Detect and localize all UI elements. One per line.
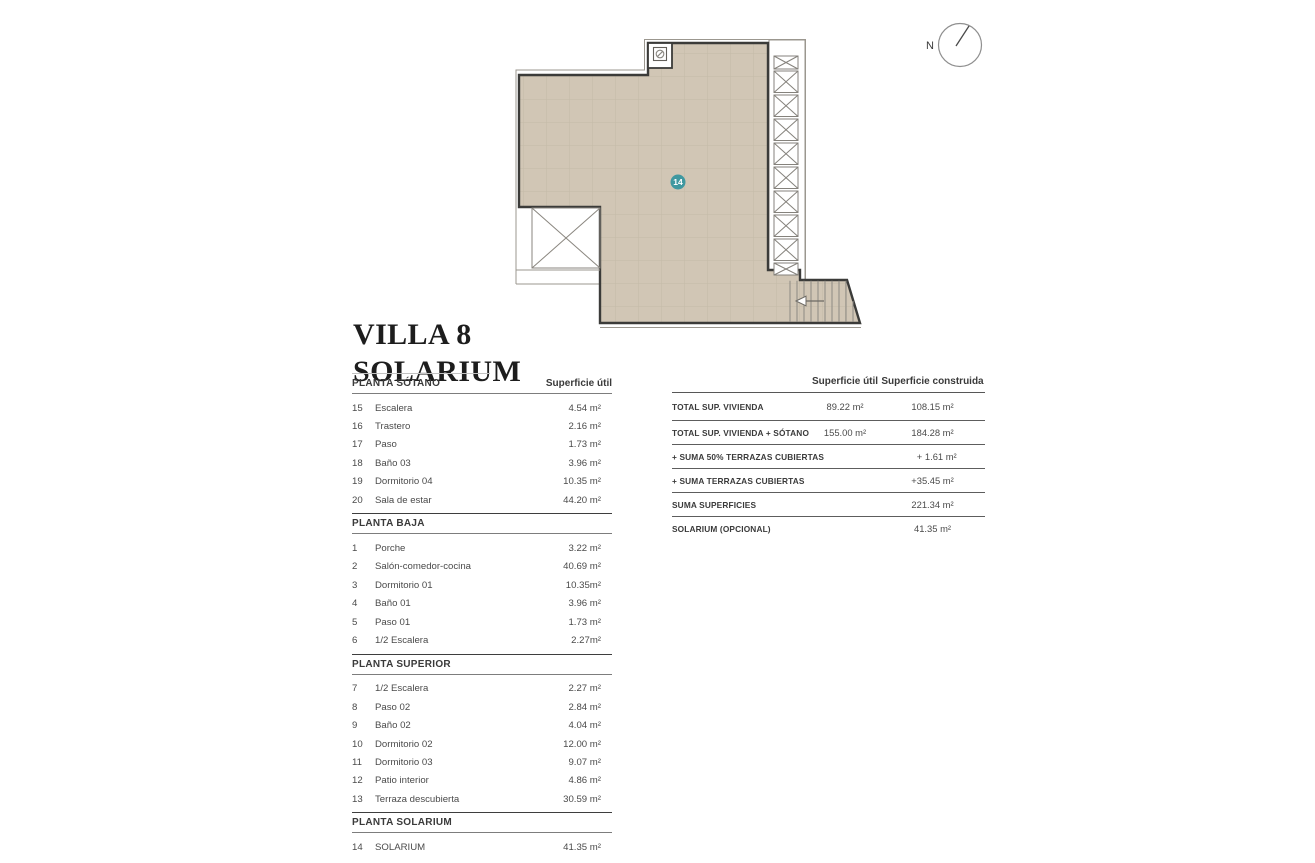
room-area: 2.16 m²	[568, 421, 612, 432]
room-number: 12	[352, 775, 375, 786]
room-name: 1/2 Escalera	[375, 635, 571, 646]
room-area: 40.69 m²	[563, 561, 612, 572]
summary-value-construida: + 1.61 m²	[888, 451, 985, 462]
room-name: Dormitorio 03	[375, 757, 568, 768]
room-number: 15	[352, 403, 375, 414]
section-title: PLANTA SUPERIOR	[352, 659, 451, 670]
drain-icon	[654, 48, 667, 61]
room-area: 4.86 m²	[568, 775, 612, 786]
room-name: Sala de estar	[375, 495, 563, 506]
room-name: Escalera	[375, 403, 568, 414]
room-area: 10.35 m²	[563, 476, 612, 487]
room-name: Dormitorio 01	[375, 580, 566, 591]
section-title: PLANTA BAJA	[352, 518, 425, 529]
summary-value-construida: 41.35 m²	[880, 523, 985, 534]
table-row: SOLARIUM (OPCIONAL)41.35 m²	[672, 517, 985, 540]
room-number: 5	[352, 617, 375, 628]
column-header-superficie-util: Superficie útil	[810, 376, 880, 387]
table-row: 13Terraza descubierta30.59 m²	[352, 790, 612, 808]
table-row: 17Paso1.73 m²	[352, 436, 612, 454]
room-number: 8	[352, 702, 375, 713]
summary-label: + SUMA TERRAZAS CUBIERTAS	[672, 476, 810, 486]
table-row: 3Dormitorio 0110.35m²	[352, 576, 612, 594]
room-number: 4	[352, 598, 375, 609]
table-row: 15Escalera4.54 m²	[352, 399, 612, 417]
room-name: Paso	[375, 439, 568, 450]
room-number: 11	[352, 757, 375, 768]
room-number: 13	[352, 794, 375, 805]
room-area: 10.35m²	[566, 580, 612, 591]
room-area: 1.73 m²	[568, 617, 612, 628]
room-name: SOLARIUM	[375, 842, 563, 853]
room-name: Paso 01	[375, 617, 568, 628]
room-name: Salón-comedor-cocina	[375, 561, 563, 572]
room-area: 3.96 m²	[568, 458, 612, 469]
section-header: PLANTA BAJA	[352, 514, 612, 533]
room-number: 18	[352, 458, 375, 469]
table-row: 16Trastero2.16 m²	[352, 417, 612, 435]
section-title: PLANTA SOLARIUM	[352, 817, 452, 828]
summary-value-construida: +35.45 m²	[880, 475, 985, 486]
summary-label: + SUMA 50% TERRAZAS CUBIERTAS	[672, 452, 824, 462]
room-area: 2.84 m²	[568, 702, 612, 713]
room-number: 14	[352, 842, 375, 853]
svg-text:14: 14	[673, 177, 683, 187]
left-table: PLANTA SÓTANOSuperficie útil15Escalera4.…	[352, 373, 612, 857]
room-number: 10	[352, 739, 375, 750]
table-row: TOTAL SUP. VIVIENDA89.22 m²108.15 m²	[672, 393, 985, 421]
room-number: 3	[352, 580, 375, 591]
room-number: 9	[352, 720, 375, 731]
summary-value-construida: 221.34 m²	[880, 499, 985, 510]
table-row: 61/2 Escalera2.27m²	[352, 631, 612, 649]
section-title: PLANTA SÓTANO	[352, 378, 440, 389]
table-row: 2Salón-comedor-cocina40.69 m²	[352, 558, 612, 576]
summary-label: TOTAL SUP. VIVIENDA	[672, 402, 810, 412]
room-name: Baño 02	[375, 720, 568, 731]
room-name: Baño 01	[375, 598, 568, 609]
table-row: 14SOLARIUM41.35 m²	[352, 838, 612, 856]
table-row: 4Baño 013.96 m²	[352, 595, 612, 613]
right-table-rows: TOTAL SUP. VIVIENDA89.22 m²108.15 m²TOTA…	[672, 393, 985, 540]
section-rows: 1Porche3.22 m²2Salón-comedor-cocina40.69…	[352, 534, 612, 649]
table-row: 10Dormitorio 0212.00 m²	[352, 735, 612, 753]
table-row: 5Paso 011.73 m²	[352, 613, 612, 631]
room-number: 19	[352, 476, 375, 487]
column-header-superficie-construida: Superficie construida	[880, 376, 985, 387]
room-name: Baño 03	[375, 458, 568, 469]
solarium-floor	[519, 43, 860, 323]
room-area: 3.96 m²	[568, 598, 612, 609]
table-row: TOTAL SUP. VIVIENDA + SÓTANO155.00 m²184…	[672, 421, 985, 445]
room-name: Paso 02	[375, 702, 568, 713]
column-header-superficie-util: Superficie útil	[546, 378, 612, 389]
room-number: 7	[352, 683, 375, 694]
room-name: Dormitorio 04	[375, 476, 563, 487]
room-name: Porche	[375, 543, 568, 554]
compass-icon: N	[915, 12, 985, 70]
room-name: Trastero	[375, 421, 568, 432]
room-marker: 14	[671, 175, 686, 190]
table-row: 19Dormitorio 0410.35 m²	[352, 473, 612, 491]
table-row: 9Baño 024.04 m²	[352, 716, 612, 734]
room-area: 2.27 m²	[568, 683, 612, 694]
room-area: 44.20 m²	[563, 495, 612, 506]
table-row: + SUMA 50% TERRAZAS CUBIERTAS+ 1.61 m²	[672, 445, 985, 469]
table-row: 8Paso 022.84 m²	[352, 698, 612, 716]
floor-plan-drawing: 14	[500, 30, 880, 330]
table-row: 1Porche3.22 m²	[352, 539, 612, 557]
summary-value-construida: 184.28 m²	[880, 427, 985, 438]
room-area: 2.27m²	[571, 635, 612, 646]
summary-value-util: 89.22 m²	[810, 401, 880, 412]
summary-value-construida: 108.15 m²	[880, 401, 985, 412]
section-rows: 14SOLARIUM41.35 m²	[352, 833, 612, 856]
summary-label: SOLARIUM (OPCIONAL)	[672, 524, 810, 534]
table-row: 11Dormitorio 039.07 m²	[352, 753, 612, 771]
table-row: + SUMA TERRAZAS CUBIERTAS+35.45 m²	[672, 469, 985, 493]
room-area: 4.04 m²	[568, 720, 612, 731]
section-header: PLANTA SOLARIUM	[352, 813, 612, 832]
room-name: Patio interior	[375, 775, 568, 786]
table-row: 71/2 Escalera2.27 m²	[352, 680, 612, 698]
room-area: 30.59 m²	[563, 794, 612, 805]
room-number: 2	[352, 561, 375, 572]
room-area: 12.00 m²	[563, 739, 612, 750]
room-name: Terraza descubierta	[375, 794, 563, 805]
summary-label: TOTAL SUP. VIVIENDA + SÓTANO	[672, 428, 810, 438]
room-area: 4.54 m²	[568, 403, 612, 414]
section-rows: 15Escalera4.54 m²16Trastero2.16 m²17Paso…	[352, 394, 612, 509]
room-area: 41.35 m²	[563, 842, 612, 853]
table-row: SUMA SUPERFICIES221.34 m²	[672, 493, 985, 517]
table-row: 20Sala de estar44.20 m²	[352, 491, 612, 509]
pergola-beams-icon	[774, 56, 798, 275]
floor-plan-sheet: 14 N VILLA 8 SOLARIUM PLANTA SÓTANOSuper…	[0, 0, 1315, 863]
room-area: 1.73 m²	[568, 439, 612, 450]
compass-north-label: N	[926, 40, 934, 52]
table-row: 18Baño 033.96 m²	[352, 454, 612, 472]
section-header: PLANTA SUPERIOR	[352, 655, 612, 674]
summary-label: SUMA SUPERFICIES	[672, 500, 810, 510]
room-area: 9.07 m²	[568, 757, 612, 768]
room-number: 16	[352, 421, 375, 432]
summary-value-util: 155.00 m²	[810, 427, 880, 438]
room-name: Dormitorio 02	[375, 739, 563, 750]
room-name: 1/2 Escalera	[375, 683, 568, 694]
right-table: Superficie útil Superficie construida TO…	[672, 376, 985, 540]
skylight-box-icon	[516, 208, 600, 270]
section-header: PLANTA SÓTANOSuperficie útil	[352, 374, 612, 393]
room-number: 6	[352, 635, 375, 646]
right-table-header: Superficie útil Superficie construida	[672, 376, 985, 393]
section-rows: 71/2 Escalera2.27 m²8Paso 022.84 m²9Baño…	[352, 675, 612, 809]
table-row: 12Patio interior4.86 m²	[352, 772, 612, 790]
room-number: 17	[352, 439, 375, 450]
room-number: 1	[352, 543, 375, 554]
room-area: 3.22 m²	[568, 543, 612, 554]
room-number: 20	[352, 495, 375, 506]
title-line-1: VILLA 8	[353, 316, 521, 353]
